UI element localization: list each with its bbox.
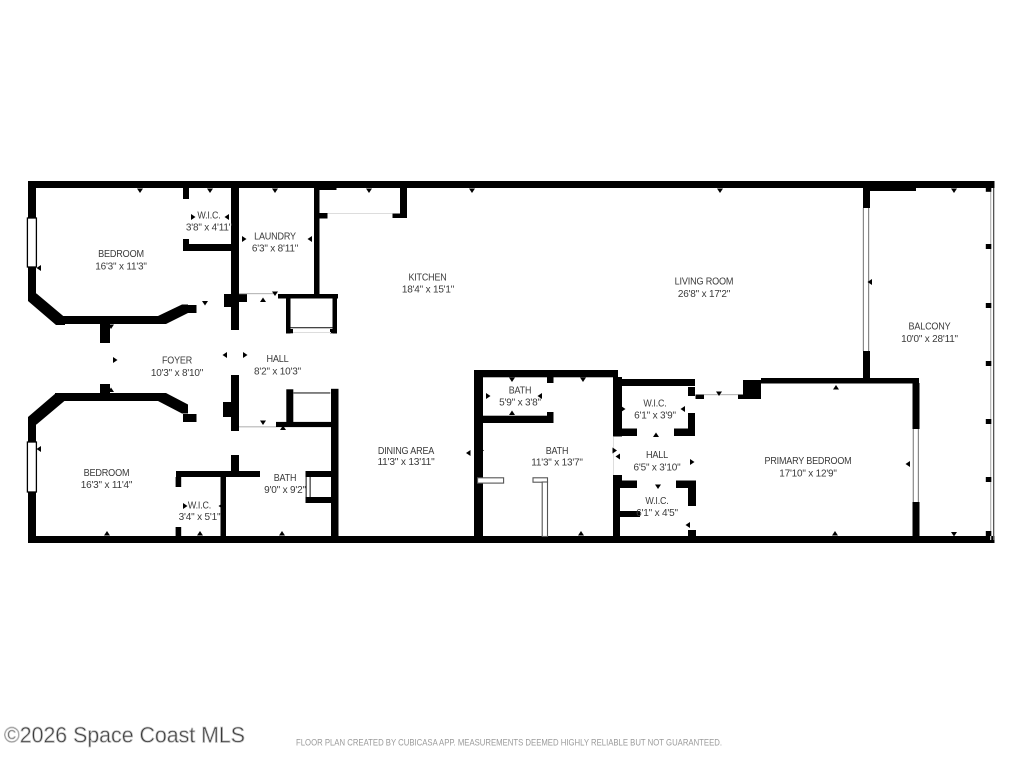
svg-text:FOYER: FOYER bbox=[162, 356, 192, 367]
svg-text:W.I.C.: W.I.C. bbox=[643, 399, 666, 410]
svg-text:26'8" x 17'2": 26'8" x 17'2" bbox=[678, 289, 731, 300]
svg-text:W.I.C.: W.I.C. bbox=[188, 501, 211, 512]
svg-text:DINING AREA: DINING AREA bbox=[378, 446, 435, 457]
svg-text:HALL: HALL bbox=[266, 354, 289, 365]
svg-text:6'3" x 8'11": 6'3" x 8'11" bbox=[252, 244, 299, 255]
svg-text:6'5" x 3'10": 6'5" x 3'10" bbox=[634, 463, 681, 474]
svg-text:©2026 Space Coast MLS: ©2026 Space Coast MLS bbox=[4, 723, 245, 748]
svg-text:BATH: BATH bbox=[274, 473, 297, 484]
svg-text:HALL: HALL bbox=[646, 450, 669, 461]
svg-text:11'3" x 13'7": 11'3" x 13'7" bbox=[531, 458, 583, 469]
svg-text:W.I.C.: W.I.C. bbox=[197, 211, 220, 222]
svg-text:17'10" x 12'9": 17'10" x 12'9" bbox=[779, 469, 837, 480]
svg-text:3'4" x 5'1": 3'4" x 5'1" bbox=[179, 512, 221, 523]
svg-text:W.I.C.: W.I.C. bbox=[645, 496, 668, 507]
svg-text:BALCONY: BALCONY bbox=[909, 322, 951, 333]
svg-text:9'0" x 9'2": 9'0" x 9'2" bbox=[264, 485, 306, 496]
svg-text:3'8" x 4'11": 3'8" x 4'11" bbox=[186, 223, 233, 234]
svg-text:16'3" x 11'3": 16'3" x 11'3" bbox=[95, 262, 147, 273]
svg-text:BEDROOM: BEDROOM bbox=[98, 249, 144, 260]
svg-text:BATH: BATH bbox=[509, 386, 532, 397]
svg-text:6'1" x 3'9": 6'1" x 3'9" bbox=[634, 411, 676, 422]
svg-text:18'4" x 15'1": 18'4" x 15'1" bbox=[402, 285, 455, 296]
svg-text:PRIMARY BEDROOM: PRIMARY BEDROOM bbox=[765, 456, 852, 467]
svg-text:BEDROOM: BEDROOM bbox=[84, 468, 130, 479]
svg-text:FLOOR PLAN CREATED BY CUBICASA: FLOOR PLAN CREATED BY CUBICASA APP. MEAS… bbox=[296, 738, 722, 748]
svg-text:11'3" x 13'11": 11'3" x 13'11" bbox=[377, 457, 435, 468]
svg-text:6'1" x 4'5": 6'1" x 4'5" bbox=[636, 508, 678, 519]
svg-text:10'0" x 28'11": 10'0" x 28'11" bbox=[901, 334, 958, 345]
svg-text:LIVING ROOM: LIVING ROOM bbox=[675, 277, 734, 288]
svg-text:LAUNDRY: LAUNDRY bbox=[254, 232, 296, 243]
svg-text:16'3" x 11'4": 16'3" x 11'4" bbox=[81, 480, 133, 491]
svg-text:8'2" x 10'3": 8'2" x 10'3" bbox=[254, 367, 301, 378]
svg-text:10'3" x 8'10": 10'3" x 8'10" bbox=[151, 368, 204, 379]
svg-text:KITCHEN: KITCHEN bbox=[408, 273, 446, 284]
svg-text:BATH: BATH bbox=[546, 446, 569, 457]
svg-text:5'9" x 3'8": 5'9" x 3'8" bbox=[499, 398, 541, 409]
